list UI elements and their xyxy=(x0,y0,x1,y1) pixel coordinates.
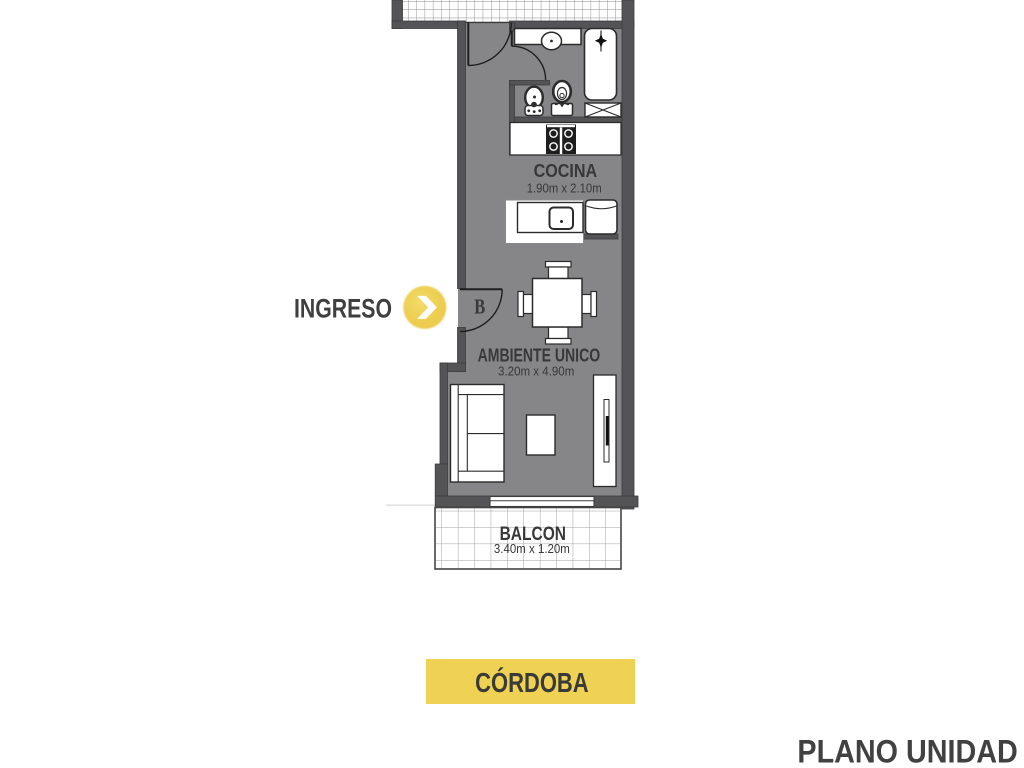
svg-text:COCINA: COCINA xyxy=(534,161,598,181)
svg-text:AMBIENTE UNICO: AMBIENTE UNICO xyxy=(478,345,601,365)
svg-text:PLANO UNIDAD: PLANO UNIDAD xyxy=(797,734,1017,768)
svg-text:B: B xyxy=(474,295,485,319)
svg-text:INGRESO: INGRESO xyxy=(294,293,392,323)
svg-text:3.20m x 4.90m: 3.20m x 4.90m xyxy=(498,363,574,378)
svg-text:CÓRDOBA: CÓRDOBA xyxy=(475,667,589,698)
svg-text:3.40m x 1.20m: 3.40m x 1.20m xyxy=(494,541,570,556)
svg-text:1.90m x 2.10m: 1.90m x 2.10m xyxy=(527,180,602,195)
